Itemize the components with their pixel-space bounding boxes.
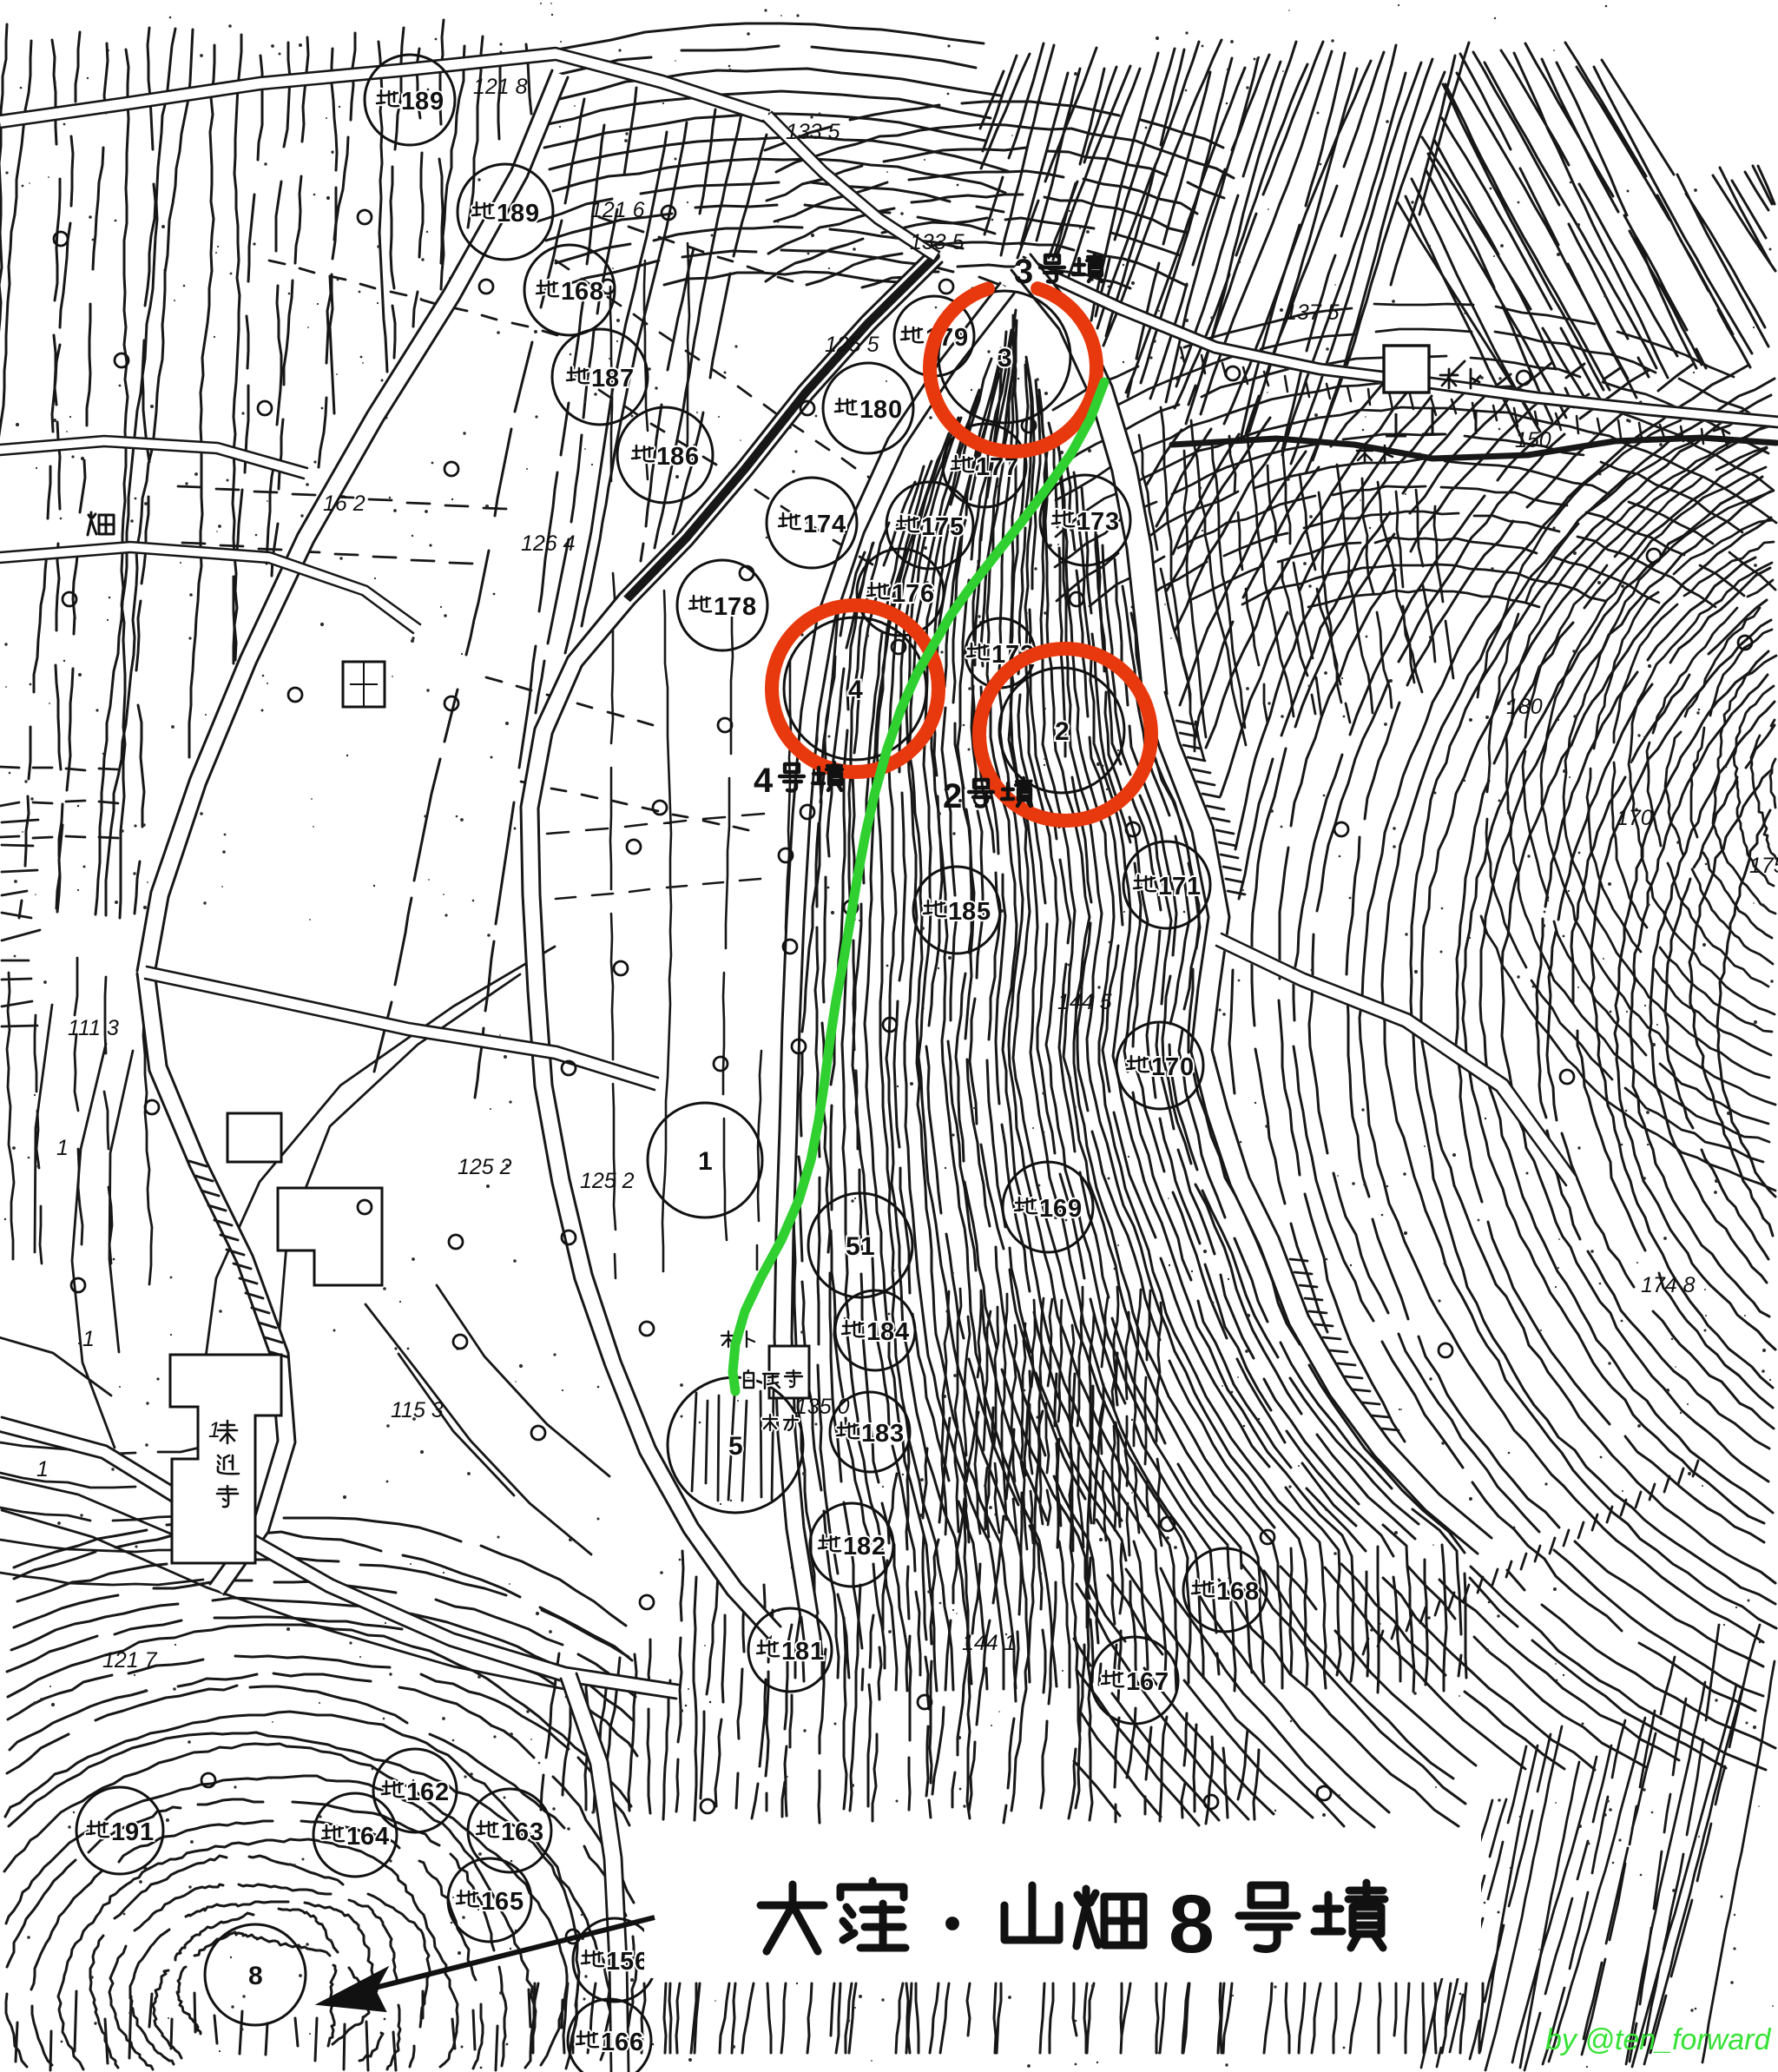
svg-text:6: 6 bbox=[615, 2029, 629, 2056]
svg-text:2: 2 bbox=[943, 777, 962, 815]
svg-text:6: 6 bbox=[1230, 1578, 1244, 1606]
svg-text:5: 5 bbox=[728, 1432, 743, 1461]
svg-text:4: 4 bbox=[754, 762, 774, 800]
svg-text:135 0: 135 0 bbox=[795, 1395, 850, 1419]
svg-text:2: 2 bbox=[872, 1533, 886, 1561]
svg-text:8: 8 bbox=[589, 278, 603, 306]
svg-text:7: 7 bbox=[1155, 1668, 1169, 1696]
svg-text:6: 6 bbox=[420, 1778, 434, 1806]
svg-text:7: 7 bbox=[905, 580, 919, 608]
svg-text:1: 1 bbox=[401, 88, 415, 115]
svg-text:8: 8 bbox=[795, 1638, 809, 1666]
svg-text:9: 9 bbox=[1068, 1195, 1082, 1223]
svg-text:4: 4 bbox=[832, 511, 846, 538]
svg-text:133 5: 133 5 bbox=[910, 230, 965, 254]
svg-text:by @ten_forward: by @ten_forward bbox=[1545, 2023, 1772, 2056]
svg-text:1: 1 bbox=[656, 443, 670, 471]
svg-text:1: 1 bbox=[501, 1818, 515, 1846]
svg-text:1: 1 bbox=[601, 2029, 615, 2056]
svg-text:9: 9 bbox=[430, 88, 444, 115]
svg-text:1: 1 bbox=[481, 1888, 495, 1916]
svg-text:1: 1 bbox=[1039, 1195, 1053, 1223]
svg-text:9: 9 bbox=[125, 1818, 139, 1846]
svg-text:1: 1 bbox=[1077, 508, 1090, 536]
svg-text:3: 3 bbox=[890, 1420, 904, 1448]
svg-text:1: 1 bbox=[561, 278, 575, 306]
svg-text:1: 1 bbox=[1187, 873, 1201, 901]
svg-text:1: 1 bbox=[140, 1818, 154, 1846]
svg-text:7: 7 bbox=[1090, 508, 1104, 536]
svg-text:8: 8 bbox=[670, 443, 684, 471]
svg-text:1: 1 bbox=[111, 1818, 125, 1846]
svg-text:2: 2 bbox=[1055, 717, 1070, 746]
svg-text:121 8: 121 8 bbox=[473, 75, 528, 99]
svg-text:1: 1 bbox=[698, 1147, 713, 1176]
svg-text:1: 1 bbox=[1151, 1053, 1165, 1081]
svg-text:8: 8 bbox=[873, 396, 887, 424]
svg-text:6: 6 bbox=[515, 1818, 529, 1846]
svg-text:6: 6 bbox=[360, 1823, 374, 1851]
svg-text:1: 1 bbox=[1216, 1578, 1230, 1606]
svg-text:8: 8 bbox=[742, 593, 756, 621]
svg-text:170: 170 bbox=[1617, 806, 1653, 830]
svg-text:180: 180 bbox=[1506, 695, 1543, 719]
svg-text:1: 1 bbox=[714, 593, 728, 621]
svg-text:1: 1 bbox=[892, 580, 905, 608]
svg-text:121 7: 121 7 bbox=[102, 1648, 158, 1673]
svg-text:125 2: 125 2 bbox=[580, 1169, 635, 1193]
svg-text:8: 8 bbox=[510, 200, 524, 228]
svg-text:175: 175 bbox=[1749, 854, 1778, 878]
svg-text:0: 0 bbox=[888, 396, 902, 424]
svg-text:115 3: 115 3 bbox=[391, 1398, 444, 1422]
svg-text:4: 4 bbox=[375, 1823, 389, 1851]
svg-text:9: 9 bbox=[954, 324, 968, 352]
svg-text:7: 7 bbox=[817, 511, 831, 538]
svg-text:8: 8 bbox=[857, 1533, 871, 1561]
svg-text:5: 5 bbox=[510, 1888, 524, 1916]
svg-text:7: 7 bbox=[728, 593, 741, 621]
svg-text:6: 6 bbox=[629, 2029, 643, 2056]
svg-text:133 5: 133 5 bbox=[786, 120, 840, 144]
svg-text:7: 7 bbox=[1172, 873, 1186, 901]
svg-text:1: 1 bbox=[921, 513, 935, 541]
svg-text:5: 5 bbox=[977, 898, 991, 926]
svg-text:2: 2 bbox=[435, 1778, 449, 1806]
svg-text:1: 1 bbox=[1126, 1668, 1140, 1696]
svg-text:5: 5 bbox=[950, 513, 964, 541]
svg-text:8: 8 bbox=[248, 1962, 263, 1990]
svg-text:9: 9 bbox=[525, 200, 539, 228]
svg-text:1: 1 bbox=[1158, 873, 1172, 901]
svg-text:1: 1 bbox=[781, 1638, 795, 1666]
svg-text:16 2: 16 2 bbox=[323, 492, 365, 516]
svg-text:1: 1 bbox=[82, 1327, 95, 1351]
svg-text:6: 6 bbox=[575, 278, 589, 306]
svg-text:8: 8 bbox=[875, 1420, 889, 1448]
svg-text:150: 150 bbox=[1515, 428, 1551, 452]
svg-text:3: 3 bbox=[1014, 253, 1033, 291]
svg-text:111 3: 111 3 bbox=[68, 1016, 119, 1040]
svg-text:4: 4 bbox=[848, 676, 863, 704]
svg-text:1: 1 bbox=[860, 1232, 875, 1261]
svg-text:1: 1 bbox=[56, 1136, 69, 1160]
svg-text:1: 1 bbox=[976, 453, 990, 481]
svg-text:1: 1 bbox=[36, 1457, 49, 1481]
svg-text:174 8: 174 8 bbox=[1641, 1273, 1696, 1297]
svg-text:1: 1 bbox=[803, 511, 817, 538]
svg-text:6: 6 bbox=[685, 443, 699, 471]
svg-text:8: 8 bbox=[1245, 1578, 1259, 1606]
svg-text:1: 1 bbox=[208, 1418, 221, 1442]
svg-text:5: 5 bbox=[846, 1232, 860, 1261]
svg-text:8: 8 bbox=[880, 1318, 894, 1346]
svg-text:8: 8 bbox=[1169, 1878, 1215, 1970]
svg-text:121 6: 121 6 bbox=[590, 198, 645, 222]
svg-text:144 1: 144 1 bbox=[962, 1631, 1017, 1655]
svg-text:1: 1 bbox=[861, 1420, 875, 1448]
svg-text:7: 7 bbox=[1165, 1053, 1179, 1081]
svg-text:7: 7 bbox=[935, 513, 949, 541]
svg-text:6: 6 bbox=[495, 1888, 509, 1916]
svg-text:1: 1 bbox=[591, 365, 605, 393]
svg-text:125 5: 125 5 bbox=[825, 333, 879, 357]
svg-text:1: 1 bbox=[497, 200, 510, 228]
svg-text:0: 0 bbox=[1180, 1053, 1194, 1081]
svg-text:1: 1 bbox=[859, 396, 873, 424]
svg-text:126 4: 126 4 bbox=[521, 531, 576, 556]
svg-text:6: 6 bbox=[920, 580, 934, 608]
svg-text:7: 7 bbox=[620, 365, 634, 393]
svg-text:3: 3 bbox=[1105, 508, 1119, 536]
svg-text:8: 8 bbox=[415, 88, 429, 115]
svg-text:3: 3 bbox=[998, 344, 1012, 373]
svg-text:1: 1 bbox=[346, 1823, 360, 1851]
svg-text:125 2: 125 2 bbox=[458, 1155, 512, 1179]
svg-text:5: 5 bbox=[620, 1948, 634, 1976]
svg-text:4: 4 bbox=[895, 1318, 909, 1346]
svg-text:1: 1 bbox=[843, 1533, 857, 1561]
svg-text:1: 1 bbox=[991, 641, 1005, 669]
svg-text:144 5: 144 5 bbox=[1057, 990, 1112, 1014]
svg-text:1: 1 bbox=[406, 1778, 420, 1806]
svg-text:8: 8 bbox=[962, 898, 976, 926]
svg-text:1: 1 bbox=[948, 898, 962, 926]
svg-text:137 5: 137 5 bbox=[1285, 300, 1340, 325]
svg-text:6: 6 bbox=[1053, 1195, 1067, 1223]
svg-text:6: 6 bbox=[1140, 1668, 1154, 1696]
svg-text:3: 3 bbox=[530, 1818, 543, 1846]
svg-text:8: 8 bbox=[605, 365, 619, 393]
svg-text:1: 1 bbox=[866, 1318, 880, 1346]
svg-text:1: 1 bbox=[810, 1638, 824, 1666]
svg-text:1: 1 bbox=[606, 1948, 620, 1976]
